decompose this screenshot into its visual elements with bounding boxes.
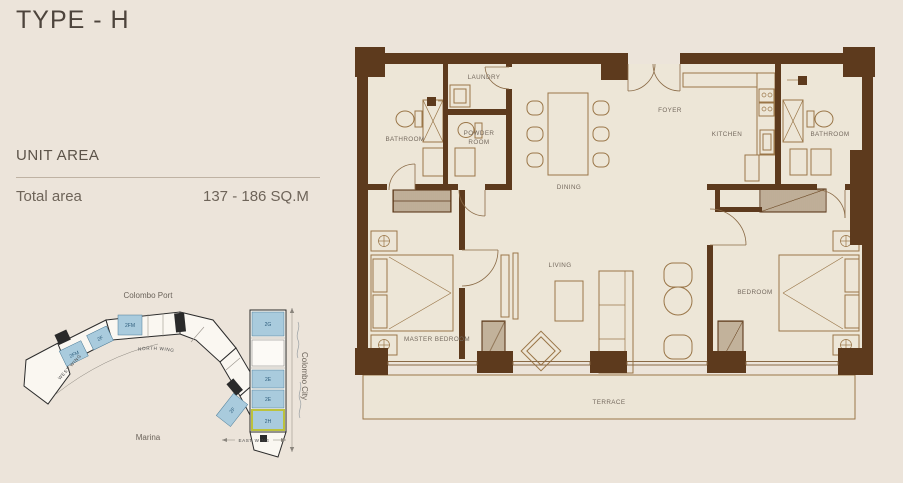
page-title: TYPE - H [16,6,130,35]
unit-cell-2h-highlighted: 2H [252,410,284,430]
room-label-living: LIVING [548,262,571,269]
wing-label-north: NORTH WING [138,346,175,353]
room-label-bathroom-left: BATHROOM [385,136,424,143]
svg-text:2G: 2G [265,322,272,328]
shoreline-and-dimension [290,308,301,452]
unit-area-heading: UNIT AREA [16,147,99,164]
room-label-bathroom-right: BATHROOM [810,131,849,138]
room-label-bedroom: BEDROOM [737,289,772,296]
stair-core [174,313,186,333]
svg-text:2E: 2E [265,377,272,383]
floor-plan: BATHROOM LAUNDRY POWDER ROOM DINING FOYE… [355,45,880,425]
room-label-laundry: LAUNDRY [468,74,501,81]
unit-cell-2fm-north: 2FM [118,315,142,335]
location-label-colombo-city: Colombo City [300,352,308,400]
terrace-area [363,375,855,419]
unit-cell-empty [252,340,284,366]
site-plan: 2FM 2F 2FM 2G 2E 2E [8,282,308,482]
wall-outlet-icon [798,76,807,85]
room-label-kitchen: KITCHEN [712,131,742,138]
room-label-foyer: FOYER [658,107,682,114]
svg-text:2E: 2E [265,397,272,403]
room-label-powder-line2: ROOM [468,139,489,146]
unit-cell-2e-upper: 2E [252,370,284,388]
room-label-dining: DINING [557,184,581,191]
total-area-label: Total area [16,188,82,205]
room-label-powder-line1: POWDER [464,130,495,137]
svg-text:2H: 2H [265,419,272,425]
unit-cell-2e-lower: 2E [252,390,284,408]
unit-area-divider [16,177,320,178]
room-label-master-bedroom: MASTER BEDROOM [404,336,470,343]
svg-text:2FM: 2FM [125,323,135,329]
wing-label-east: EAST WING [238,438,269,443]
location-label-colombo-port: Colombo Port [124,291,174,300]
location-label-marina: Marina [136,433,161,442]
unit-cell-2g: 2G [252,312,284,336]
brochure-page: TYPE - H UNIT AREA Total area 137 - 186 … [0,0,903,483]
room-label-terrace: TERRACE [593,399,626,406]
shoreline-squiggle [297,322,299,358]
wall-outlet-icon [427,97,436,106]
total-area-value: 137 - 186 SQ.M [203,188,309,205]
